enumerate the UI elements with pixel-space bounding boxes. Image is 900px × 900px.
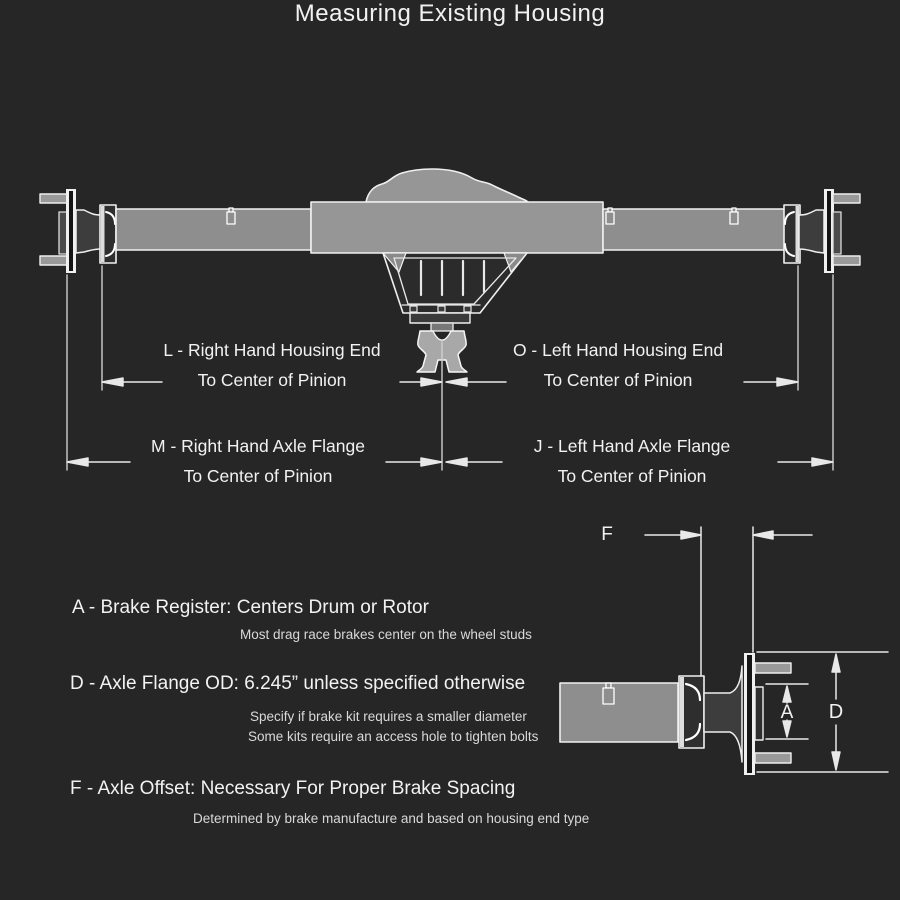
right-hub-register [833, 212, 841, 254]
legend-f-heading: F - Axle Offset: Necessary For Proper Br… [70, 778, 515, 800]
axle-end-detail-drawing [560, 527, 888, 775]
dim-M-label-line1: M - Right Hand Axle Flange [118, 436, 398, 457]
left-hub-register [59, 212, 67, 254]
left-housing-end [100, 205, 116, 263]
detail-axle-tube [560, 683, 678, 742]
detail-housing-end [679, 676, 704, 748]
center-housing-rect [311, 202, 603, 253]
right-axle-tube [603, 209, 785, 250]
detail-axle-flange [744, 653, 755, 775]
right-housing-end [784, 205, 800, 263]
right-hub-cone [799, 210, 824, 253]
diagram-page: Measuring Existing Housing L - Right Han… [0, 0, 900, 900]
dim-F [645, 527, 812, 676]
detail-D-letter: D [825, 701, 847, 724]
detail-axle-neck [704, 666, 742, 762]
dim-O-label-line1: O - Left Hand Housing End [478, 340, 758, 361]
main-axle-drawing [40, 169, 860, 470]
detail-F-letter: F [596, 524, 618, 546]
legend-d-note1: Specify if brake kit requires a smaller … [250, 709, 527, 724]
center-section [311, 169, 603, 253]
dimension-row-axle-flange [67, 458, 833, 466]
detail-brake-register [755, 687, 763, 740]
left-axle-flange [66, 189, 76, 273]
center-dome [366, 169, 528, 202]
dim-M-label-line2: To Center of Pinion [118, 466, 398, 487]
left-axle-tube [116, 209, 311, 250]
page-title: Measuring Existing Housing [0, 0, 900, 28]
legend-d-heading: D - Axle Flange OD: 6.245” unless specif… [70, 673, 525, 695]
dim-L-label-line1: L - Right Hand Housing End [132, 340, 412, 361]
dim-O-label-line2: To Center of Pinion [478, 370, 758, 391]
legend-f-note: Determined by brake manufacture and base… [193, 811, 589, 826]
dim-J-label-line2: To Center of Pinion [492, 466, 772, 487]
detail-A-letter: A [776, 702, 798, 724]
legend-d-note2: Some kits require an access hole to tigh… [248, 729, 538, 744]
pinion-yoke [410, 313, 470, 372]
dim-L-label-line2: To Center of Pinion [132, 370, 412, 391]
dim-J-label-line1: J - Left Hand Axle Flange [492, 436, 772, 457]
legend-a-note: Most drag race brakes center on the whee… [240, 627, 532, 642]
differential-case [383, 253, 527, 313]
left-hub-cone [76, 210, 101, 253]
legend-a-heading: A - Brake Register: Centers Drum or Roto… [72, 597, 429, 619]
